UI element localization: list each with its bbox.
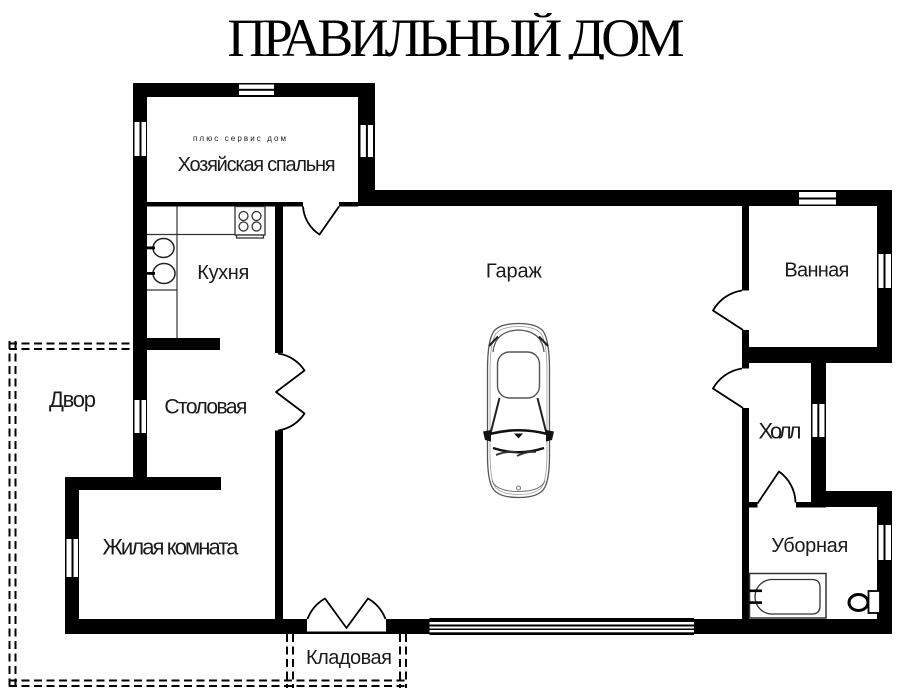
svg-text:Уборная: Уборная	[771, 535, 848, 557]
svg-text:Ванная: Ванная	[784, 260, 849, 282]
svg-text:Двор: Двор	[49, 387, 96, 412]
svg-text:Кухня: Кухня	[197, 262, 249, 284]
svg-text:Столовая: Столовая	[164, 396, 247, 419]
svg-text:ПРАВИЛЬНЫЙ ДОМ: ПРАВИЛЬНЫЙ ДОМ	[228, 8, 685, 68]
svg-text:Кладовая: Кладовая	[306, 647, 392, 669]
svg-text:Холл: Холл	[759, 419, 802, 444]
svg-text:Гараж: Гараж	[486, 261, 543, 283]
svg-text:Хозяйская спальня: Хозяйская спальня	[178, 154, 336, 176]
svg-text:Жилая комната: Жилая комната	[103, 535, 240, 560]
